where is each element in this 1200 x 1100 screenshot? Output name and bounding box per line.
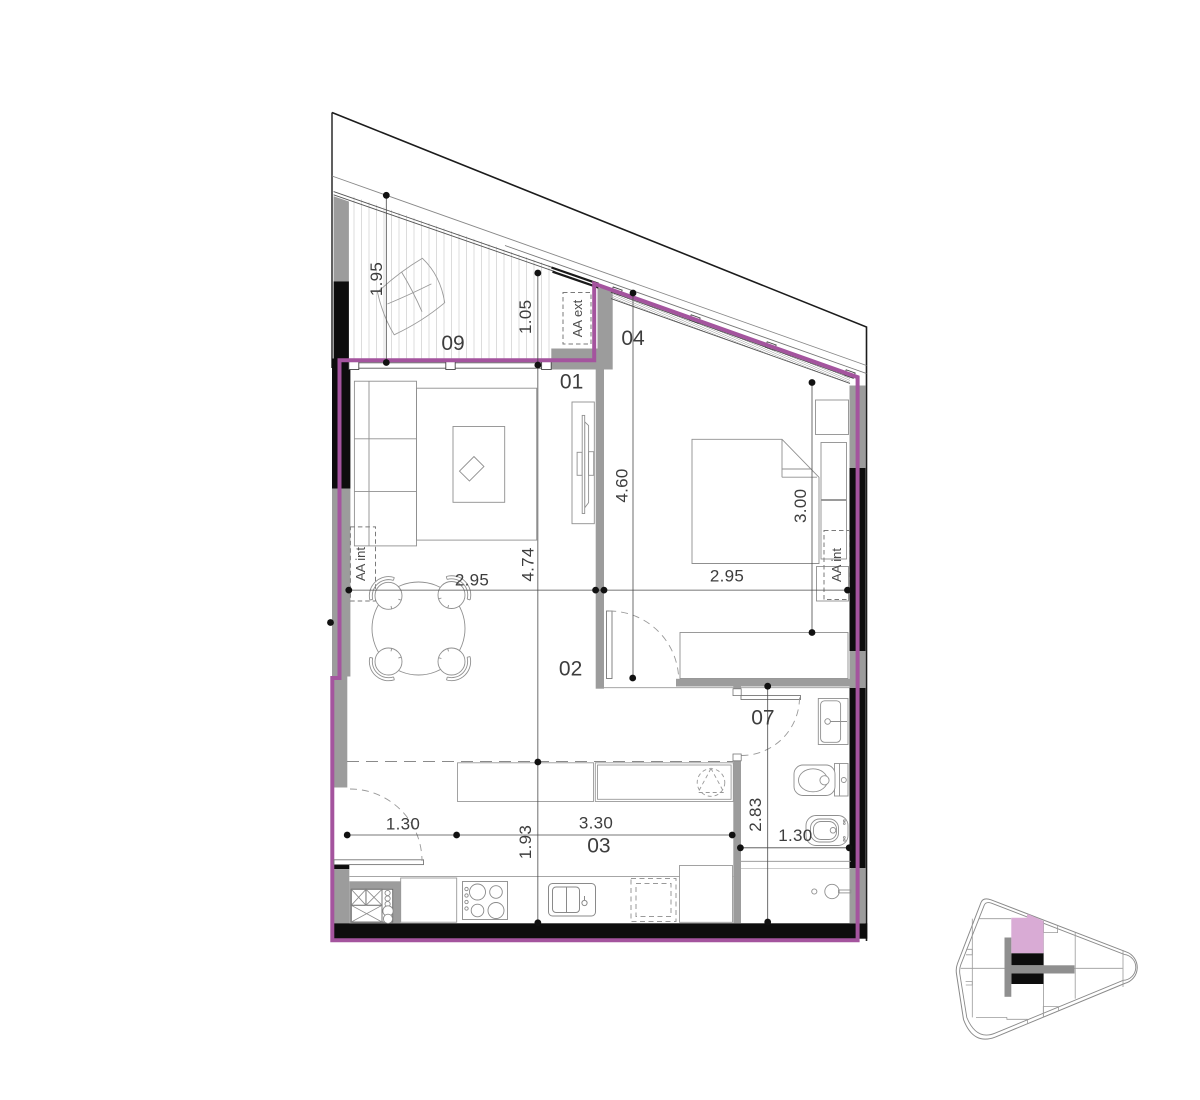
svg-text:4.74: 4.74 xyxy=(519,547,538,581)
svg-text:1.30: 1.30 xyxy=(386,815,420,834)
svg-text:AA int: AA int xyxy=(353,547,368,581)
svg-text:1.95: 1.95 xyxy=(367,262,386,296)
svg-text:2.95: 2.95 xyxy=(455,571,489,590)
svg-text:1.30: 1.30 xyxy=(778,826,812,845)
svg-text:3.30: 3.30 xyxy=(579,814,613,833)
svg-text:3.00: 3.00 xyxy=(791,489,810,523)
svg-text:01: 01 xyxy=(560,371,583,394)
svg-text:4.60: 4.60 xyxy=(612,468,631,502)
svg-text:03: 03 xyxy=(587,835,610,858)
svg-text:04: 04 xyxy=(621,327,645,350)
svg-text:AA ext: AA ext xyxy=(570,299,585,337)
svg-text:09: 09 xyxy=(441,332,464,355)
svg-text:02: 02 xyxy=(559,658,582,681)
svg-text:2.95: 2.95 xyxy=(710,567,744,586)
svg-text:AA int: AA int xyxy=(829,548,844,582)
svg-text:07: 07 xyxy=(751,707,774,730)
svg-text:2.83: 2.83 xyxy=(746,797,765,831)
svg-text:1.93: 1.93 xyxy=(516,825,535,859)
svg-text:1.05: 1.05 xyxy=(516,300,535,334)
